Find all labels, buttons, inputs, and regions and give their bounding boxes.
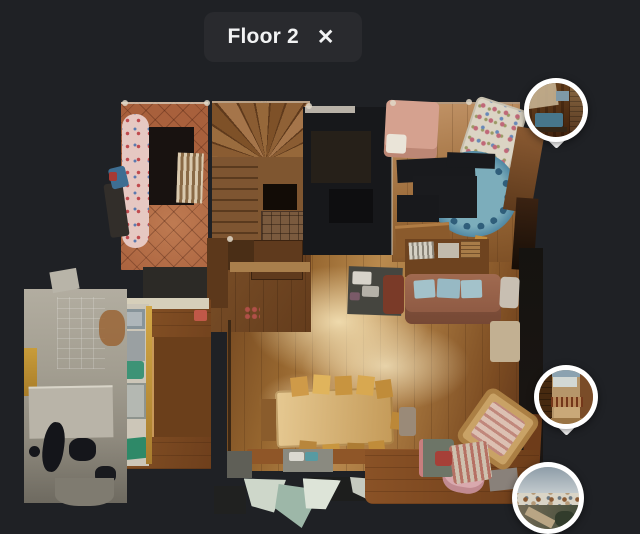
striped-armchair	[448, 440, 492, 484]
wall-speck	[227, 236, 233, 242]
red-pouf	[435, 451, 452, 466]
dining-chair	[356, 375, 375, 396]
utility-dark-blob-2	[69, 438, 96, 461]
thumb-light-wall	[529, 83, 559, 109]
console-shelf	[405, 239, 489, 277]
thumb-railing	[551, 397, 583, 407]
blue-pillow-2	[437, 278, 461, 298]
thumb-sky-bit	[556, 91, 569, 101]
matterport-floor-view: { "header": { "title": "Floor 2", "close…	[0, 0, 640, 530]
floor-title: Floor 2	[227, 25, 298, 49]
pano-pin-middle[interactable]	[534, 365, 598, 449]
kitchen-red-item	[194, 310, 207, 321]
wall-speck	[204, 100, 210, 106]
sideboard-dishes	[283, 449, 333, 472]
red-armchair	[383, 275, 404, 314]
mini-sofa	[399, 407, 416, 436]
utility-table	[29, 385, 114, 438]
utility-dark-blob-3	[29, 446, 40, 457]
side-pillow	[499, 277, 520, 309]
pano-pin-lower[interactable]	[512, 462, 584, 534]
pano-pin-upper[interactable]	[524, 78, 588, 162]
white-dish	[289, 452, 304, 461]
wall-speck	[466, 99, 472, 105]
staircase-straight-treads	[212, 157, 260, 251]
scan-hole-3	[397, 195, 439, 222]
thumb-wood-column	[570, 83, 583, 137]
kitchen-island	[152, 337, 211, 437]
firewood-stack	[176, 153, 204, 204]
toy-bits	[350, 292, 360, 300]
hall-cabinet	[251, 240, 303, 280]
pale-ottoman	[490, 321, 520, 362]
red-cushion	[109, 172, 117, 181]
pin-ring	[524, 78, 588, 142]
white-pillow-1	[352, 271, 371, 285]
striped-cushion	[409, 241, 435, 259]
pink-bed-pillow	[386, 134, 407, 154]
thumb-rail	[533, 127, 567, 132]
thumb-tree	[555, 511, 575, 527]
plain-cushion	[438, 243, 459, 258]
balcony-interior-thumbnail	[529, 83, 583, 137]
dining-chair	[375, 379, 393, 399]
thumb-floor	[551, 418, 585, 424]
sideboard-grey-1	[227, 451, 252, 478]
utility-tile-grid	[57, 297, 105, 369]
utility-bottom-bump	[55, 478, 114, 506]
dark-bedroom-void	[329, 189, 373, 223]
staircase-fan-treads	[212, 101, 310, 161]
dark-bedroom-headboard	[305, 106, 355, 113]
hall-red-items	[244, 306, 260, 319]
dining-chair	[290, 376, 309, 397]
living-room-wall-line	[228, 320, 231, 466]
teal-dish	[305, 452, 318, 461]
scan-hole-4	[447, 152, 495, 169]
pin-ring	[512, 462, 584, 534]
wall-speck	[122, 100, 128, 106]
dining-chair	[335, 376, 353, 396]
basket	[461, 241, 480, 258]
thumb-sky	[517, 467, 579, 495]
wall-speck	[390, 100, 396, 106]
pin-ring	[534, 365, 598, 429]
hall-wall-strip	[207, 238, 228, 308]
terrace-interior-thumbnail	[539, 370, 593, 424]
floor-selector-panel: Floor 2 ✕	[204, 12, 362, 62]
village-exterior-thumbnail	[517, 467, 579, 529]
white-pillow-2	[362, 286, 379, 298]
stairwell-opening	[263, 184, 297, 210]
dining-bench	[261, 399, 276, 441]
blue-pillow-1	[413, 279, 435, 298]
pink-bed	[384, 100, 440, 160]
wall-speck	[306, 103, 312, 109]
close-button[interactable]: ✕	[313, 25, 339, 50]
blue-pillow-3	[461, 280, 483, 299]
scan-gap-2	[214, 486, 246, 514]
dark-bedroom-bed	[311, 131, 371, 183]
thumb-teal-sofa	[535, 113, 563, 127]
hall-bench-light	[230, 262, 310, 272]
utility-tan-blob	[99, 310, 125, 346]
thumb-sky	[553, 377, 577, 387]
dining-chair	[312, 374, 330, 394]
leather-sofa	[405, 274, 501, 324]
